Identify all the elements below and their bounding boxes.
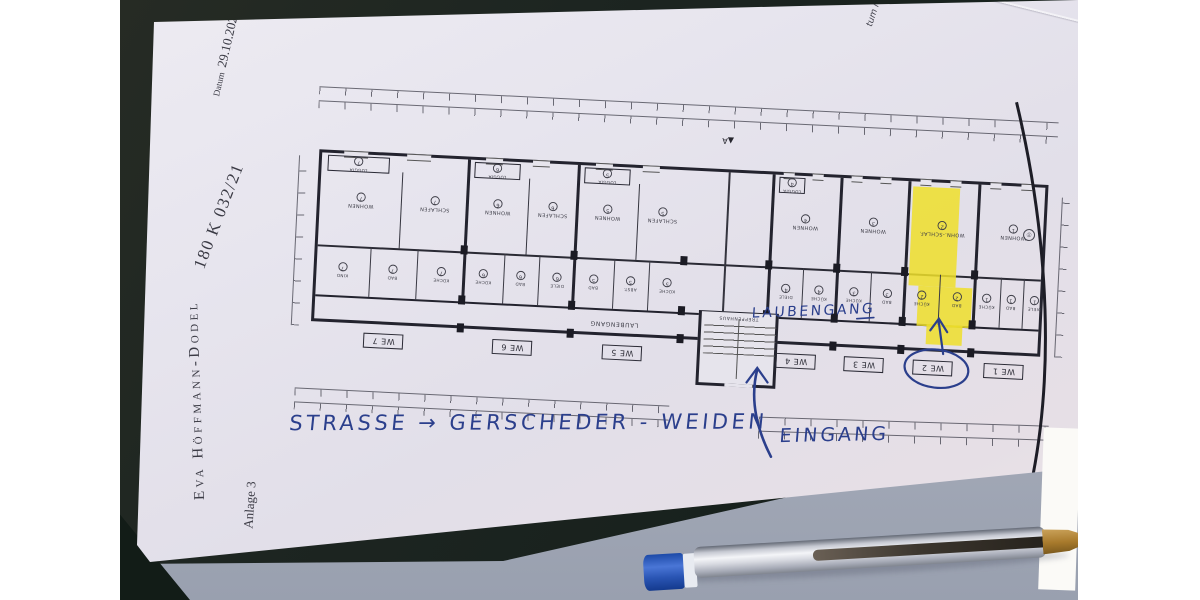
we-label: WE 7 [372,336,395,346]
we-label-box: WE 7 [363,333,404,350]
we-label: WE 1 [992,366,1015,376]
pen-stroke-overlay [274,75,1078,534]
we-label: WE 5 [610,348,633,358]
laubengang-underline-dash [857,317,874,320]
we-label: WE 2 [921,363,944,373]
side-note: tum Nr. 2 [865,0,887,28]
we-label: WE 4 [784,356,807,366]
entrance-arrow-head [747,367,769,383]
floor-plan: LAUBENGANG LOGGIA7WOHNEN7SCHLAFEN7KIND7B… [274,75,1078,534]
we-label-box: WE 5 [601,344,642,361]
letterhead-date: Datum29.10.2021 [207,8,242,97]
we-label-box: WE 4 [775,353,816,370]
we-label-box: WE 3 [843,356,884,373]
page-curl-line [998,102,1058,480]
photo-area: Datum29.10.2021 180 K 032/21 Eva Höffman… [120,0,1078,600]
we-label-box: WE 6 [492,339,533,356]
photo-of-floor-plan-document: { "letterhead": { "date_label": "Datum",… [0,0,1200,600]
letterhead-name: Eva Höffmann-Dodel [185,300,209,501]
attachment-label: Anlage 3 [240,481,259,529]
we-label: WE 3 [852,360,875,370]
paper-crease [958,0,1078,28]
date-value: 29.10.2021 [214,8,242,68]
entrance-stroke [751,370,775,457]
we-label-box: WE 1 [983,363,1024,380]
we-label-box: WE 2 [912,360,953,377]
pen-cap [643,553,687,591]
date-label: Datum [211,71,226,97]
pen-tip [1042,527,1078,555]
case-number: 180 K 032/21 [190,160,249,271]
we-label: WE 6 [500,342,523,352]
